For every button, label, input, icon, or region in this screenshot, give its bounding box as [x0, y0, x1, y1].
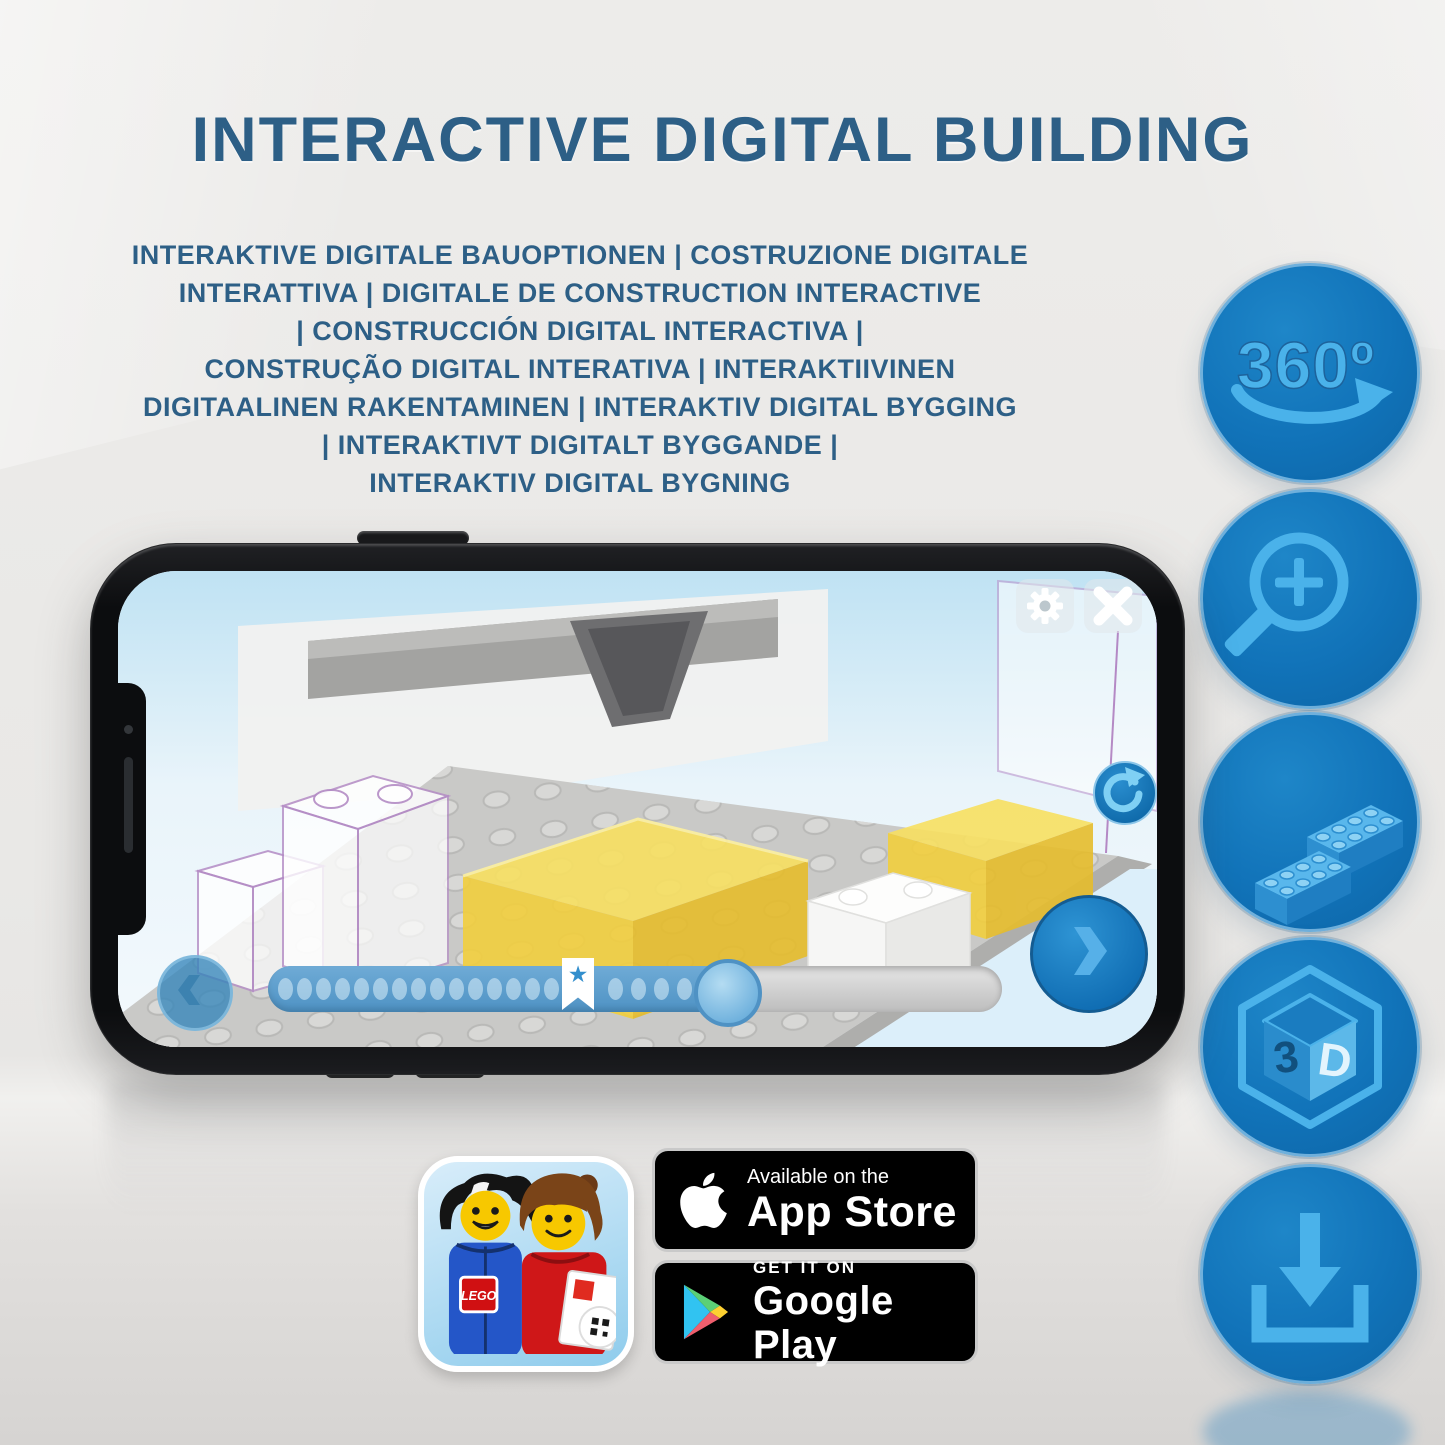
- subtitle-line: INTERATTIVA | DIGITALE DE CONSTRUCTION I…: [0, 274, 1160, 312]
- progress-dots: [278, 978, 578, 1000]
- rotate-reset-button[interactable]: [1093, 761, 1157, 825]
- close-button[interactable]: [1084, 579, 1142, 633]
- app-screen: ★: [118, 571, 1157, 1047]
- chevron-left-icon: [160, 958, 224, 1022]
- marketing-banner: INTERACTIVE DIGITAL BUILDING INTERAKTIVE…: [0, 0, 1445, 1445]
- feature-3d-view-icon: 3 D: [1200, 937, 1420, 1157]
- feature-bricks-icon: [1200, 712, 1420, 932]
- progress-dot: [392, 978, 407, 1000]
- 360-label: 360º: [1237, 328, 1375, 402]
- build-progress-slider[interactable]: ★: [268, 966, 1002, 1012]
- earpiece-speaker: [124, 757, 133, 853]
- subtitle-line: INTERAKTIV DIGITAL BYGNING: [0, 464, 1160, 502]
- phone-mockup: ★: [90, 543, 1185, 1075]
- 360-degrees-icon: 360º: [1203, 266, 1417, 480]
- progress-dot: [468, 978, 483, 1000]
- progress-dot: [411, 978, 426, 1000]
- google-play-badge[interactable]: GET IT ON Google Play: [652, 1260, 978, 1364]
- subtitle-line: | CONSTRUCCIÓN DIGITAL INTERACTIVA |: [0, 312, 1160, 350]
- chevron-right-icon: [1033, 898, 1139, 1004]
- lego-logo-text: LEGO: [461, 1289, 497, 1303]
- next-step-button[interactable]: [1030, 895, 1148, 1013]
- subtitle-line: | INTERAKTIVT DIGITALT BYGGANDE |: [0, 426, 1160, 464]
- progress-dot: [631, 978, 646, 1000]
- progress-dot: [278, 978, 293, 1000]
- google-play-tagline: GET IT ON: [753, 1257, 975, 1279]
- progress-dot: [449, 978, 464, 1000]
- progress-dot: [608, 978, 623, 1000]
- app-store-name: App Store: [747, 1189, 957, 1235]
- page-title: INTERACTIVE DIGITAL BUILDING: [0, 104, 1445, 176]
- front-camera: [124, 725, 133, 734]
- progress-dot: [354, 978, 369, 1000]
- progress-dot: [430, 978, 445, 1000]
- app-store-tagline: Available on the: [747, 1165, 957, 1189]
- progress-dot: [525, 978, 540, 1000]
- gear-icon: [1016, 579, 1074, 633]
- circle-reflection: [1203, 1392, 1411, 1445]
- progress-dot: [335, 978, 350, 1000]
- lego-app-icon[interactable]: LEGO: [418, 1156, 634, 1372]
- progress-dot: [654, 978, 669, 1000]
- google-play-name: Google Play: [753, 1279, 975, 1367]
- apple-icon: [677, 1169, 729, 1231]
- lego-minifigures-art: LEGO: [424, 1162, 616, 1354]
- subtitle-line: CONSTRUÇÃO DIGITAL INTERATIVA | INTERAKT…: [0, 350, 1160, 388]
- settings-button[interactable]: [1016, 579, 1074, 633]
- progress-dot: [487, 978, 502, 1000]
- progress-dot: [373, 978, 388, 1000]
- star-icon: ★: [568, 962, 589, 988]
- slider-thumb[interactable]: [694, 959, 762, 1027]
- progress-dot: [316, 978, 331, 1000]
- magnifier-plus-icon: [1203, 492, 1417, 706]
- app-store-badge[interactable]: Available on the App Store: [652, 1148, 978, 1252]
- close-icon: [1084, 579, 1142, 633]
- previous-step-button[interactable]: [157, 955, 233, 1031]
- progress-dot: [544, 978, 559, 1000]
- cube-letter: D: [1315, 1032, 1355, 1088]
- phone-notch: [118, 683, 146, 935]
- progress-dots: [608, 978, 692, 1000]
- circular-arrow-icon: [1095, 763, 1151, 819]
- progress-dot: [506, 978, 521, 1000]
- multilingual-subtitle: INTERAKTIVE DIGITALE BAUOPTIONEN | COSTR…: [0, 236, 1160, 502]
- feature-360-rotation-icon: 360º: [1200, 263, 1420, 483]
- feature-download-icon: [1200, 1164, 1420, 1384]
- feature-zoom-icon: [1200, 489, 1420, 709]
- progress-dot: [297, 978, 312, 1000]
- subtitle-line: INTERAKTIVE DIGITALE BAUOPTIONEN | COSTR…: [0, 236, 1160, 274]
- google-play-icon: [677, 1280, 735, 1344]
- phone-reflection: [108, 1082, 1164, 1252]
- download-icon: [1203, 1167, 1417, 1381]
- lego-bricks-icon: [1203, 715, 1417, 929]
- progress-dot: [677, 978, 692, 1000]
- subtitle-line: DIGITAALINEN RAKENTAMINEN | INTERAKTIV D…: [0, 388, 1160, 426]
- 3d-cube-icon: 3 D: [1203, 940, 1417, 1154]
